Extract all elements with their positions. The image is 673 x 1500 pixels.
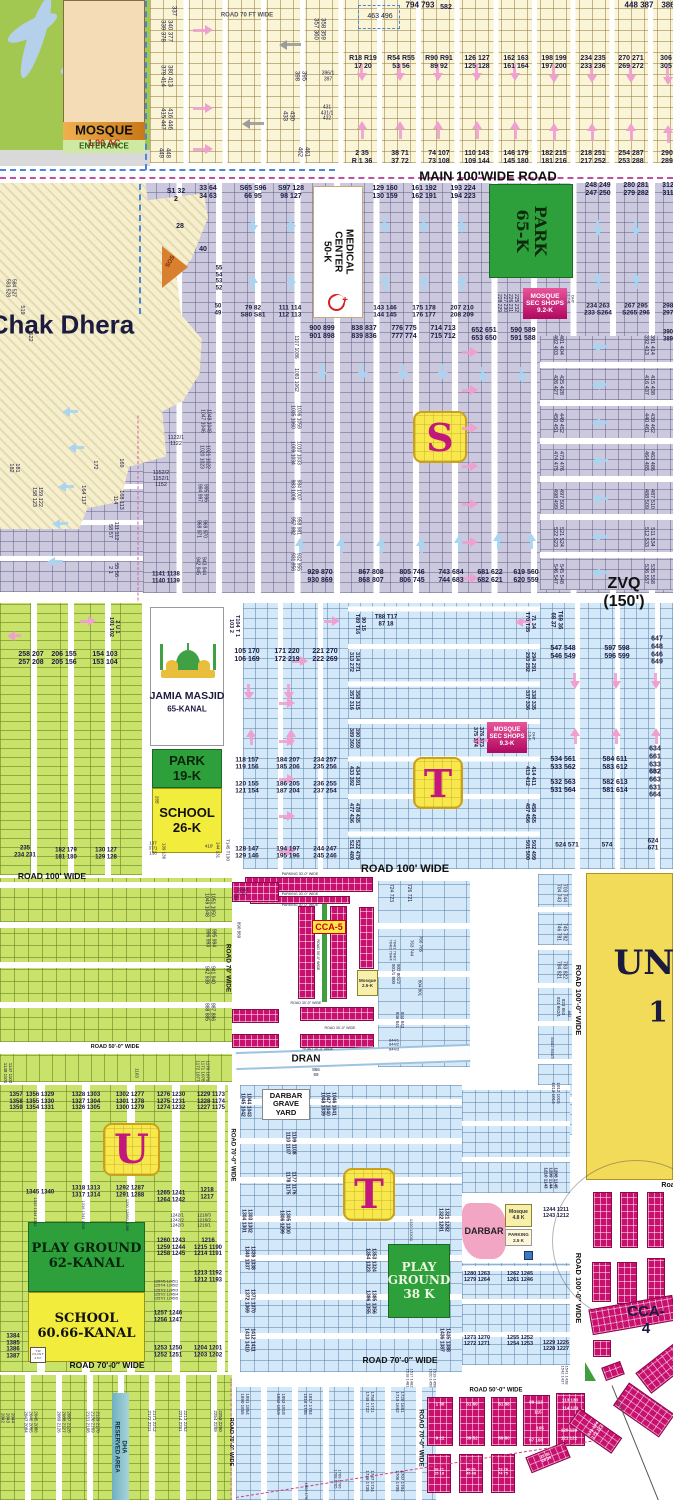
plot-number-label: 1316 1341 1315 <box>81 1201 85 1230</box>
road-label: ROAD 100' WIDE <box>361 863 449 875</box>
plot-number-label: 1750 1721 1749 1722 <box>365 1391 375 1412</box>
blue-arrow-left-icon <box>592 419 608 427</box>
park-65k-label: PARK 65-K <box>513 206 549 256</box>
plot-number-label: 139 136 <box>161 843 166 859</box>
plot-number-label: 844/1 844/2 844/3 <box>389 1038 399 1051</box>
plot-number-label: 1012 1015 1013 1014 <box>551 1082 561 1103</box>
cca4-block <box>647 1192 664 1248</box>
plot-number-label: 71 34 T70 T35 <box>524 612 536 632</box>
medical-center-label: MEDICAL CENTER 50-K <box>321 229 355 275</box>
blue-arrow-up-icon <box>458 275 466 291</box>
blue-arrow-down-icon <box>439 364 447 380</box>
boundary-line <box>0 169 335 171</box>
pink-arrow-right-icon <box>462 462 478 470</box>
plot-number-label: 995 996 994 997 <box>196 484 207 502</box>
plot-number-label: 390 359 389 360 <box>348 728 360 748</box>
plot-number-label: 823 863 824 862/1 <box>556 997 566 1017</box>
road-label: ROAD 100'-0″ WIDE <box>574 965 582 1035</box>
plot-number-label: 270 271 269 272 <box>618 55 643 71</box>
plot-number-label: 1276 1230 1275 1231 1274 1232 <box>157 1092 185 1112</box>
plot-number-label: 1242/1 1242/2 1242/3 <box>170 1212 184 1227</box>
pink-arrow-right-icon <box>462 348 478 356</box>
plot-number-label: 1122/1 1122 <box>168 435 184 447</box>
field-u-top <box>0 603 148 875</box>
blue-arrow-down-icon <box>594 220 602 236</box>
medical-crescent-icon: + <box>328 294 348 310</box>
plot-number-label: 1010 1033 1009 1034 <box>289 441 300 465</box>
blue-arrow-left-icon <box>592 343 608 351</box>
plot-number-label: 1216 1215 1190 1214 1191 <box>194 1238 222 1258</box>
boundary-line <box>138 416 139 601</box>
plot-number-label: T88 T17 87 18 <box>375 614 397 627</box>
pink-arrow-right-icon <box>193 104 213 112</box>
mosque-sec-shops-92-label: MOSQUE SEC SHOPS 9.2-K <box>526 293 564 315</box>
plot-number-label: 929 870 930 869 <box>307 569 332 585</box>
park-19k: PARK 19-K <box>152 749 222 788</box>
plot-number-label: 267 295 S265 296 <box>622 303 650 318</box>
plot-number-label: 714 713 715 712 <box>430 325 455 341</box>
plot-number-label: 1046 1041 1047 1040 1048 1039 <box>319 1092 336 1116</box>
plot-number-label: 478 435 477 436 <box>348 803 360 823</box>
plot-number-label: 113 130 <box>562 1397 578 1402</box>
blue-arrow-up-icon <box>527 533 535 549</box>
plot-number-label: 294 291 293 292 <box>524 652 536 672</box>
plot-number-label: 2087 2128 2088 2127 2089 2126 <box>56 1411 71 1432</box>
plot-number-label: 1109 1108 1110 1107 <box>284 1131 295 1154</box>
plot-number-label: 2171 2212 2172 2211 <box>147 1410 157 1431</box>
cca5-chip: CCA-5 <box>312 920 346 934</box>
plot-number-label: 338 335 337 336 <box>524 690 536 710</box>
plot-number-label: 90 15 T89 T16 <box>354 614 366 634</box>
plot-number-label: 1244 1211 1243 1212 <box>543 1207 569 1219</box>
plot-number-label: 285' <box>154 796 159 804</box>
plot-number-label: ROAD 30'-0″ WIDE <box>325 1026 356 1030</box>
plot-number-label: 890 889 <box>236 922 241 938</box>
plot-number-label: 1353 1324 1354 1323 <box>364 1248 375 1272</box>
plot-number-label: 130 127 129 128 <box>95 847 117 860</box>
plot-number-label: 425 428 426 427 <box>552 375 564 395</box>
playground-38k: PLAY GROUND 38 K <box>388 1244 450 1318</box>
plot-number-label: S65 S96 66 95 <box>240 185 267 201</box>
ohwt-box-label: T.W O.H.W.T 2.5 K <box>32 1350 44 1360</box>
plot-number-label: 33 64 34 63 <box>199 185 217 201</box>
blue-arrow-up-icon <box>337 538 345 554</box>
plot-number-label: 2129 2170 2130 2169 2131 2168 <box>85 1411 100 1432</box>
plot-number-label: 943 944 942 945 <box>194 557 205 575</box>
pink-arrow-right-icon <box>462 574 478 582</box>
plot-number-label: 28 <box>176 223 184 231</box>
plot-number-label: 844 843 846 841 <box>395 1012 405 1028</box>
cca4-block <box>593 1192 612 1248</box>
blue-arrow-down-icon <box>249 217 257 233</box>
plot-number-label: 1328 1303 1327 1304 1326 1305 <box>72 1092 100 1112</box>
plot-number-label: 1891 1854 1890 1855 <box>240 1393 250 1414</box>
pink-arrow-right-icon <box>279 812 295 820</box>
plot-number-label: 932 955 931 956 <box>289 553 300 571</box>
plot-number-label: 805 746 806 745 <box>399 569 424 585</box>
plot-number-label: 776 775 777 774 <box>391 325 416 341</box>
ohwt-tank <box>524 1251 533 1260</box>
plot-number-label: 1229 1226 1228 1227 <box>543 1340 569 1352</box>
plot-number-label: 1385 1356 1386 1355 <box>364 1290 375 1314</box>
plot-number-label: 97 106 <box>529 1437 543 1442</box>
plot-number-label: 1147 1102 1148 1101 <box>3 1063 13 1084</box>
darbar-graveyard-label: DARBAR GRAVE YARD <box>263 1092 309 1117</box>
pink-arrow-up-icon <box>247 729 255 745</box>
plot-number-label: 864 <box>233 893 238 901</box>
cca5-block <box>300 1034 374 1048</box>
plot-number-label: 958 981 957 982 <box>289 517 300 535</box>
plot-number-label: 234 235 233 236 <box>580 55 605 71</box>
plot-number-label: 39 52 <box>466 1435 477 1440</box>
plot-number-label: 522 <box>27 332 33 341</box>
plot-number-label: 380 413 379 414 <box>159 65 172 87</box>
ohwt-box: T.W O.H.W.T 2.5 K <box>30 1347 46 1363</box>
blue-arrow-left-icon <box>592 457 608 465</box>
plot-number-label: 1213 1192 1212 1193 <box>194 1270 222 1283</box>
road-label: ZVQ (150') <box>600 575 649 611</box>
plot-number-label: 2045 2086 2046 2085 2047 2084 <box>23 1411 38 1432</box>
plot-number-label: 1107 1086 <box>292 335 298 358</box>
mosque-48k-label: Mosque 4.8 K <box>509 1210 528 1221</box>
plot-number-label: 154 103 153 104 <box>92 651 117 667</box>
plot-number-label: 1737 1734 1736 1735 <box>365 1470 375 1491</box>
plot-number-label: 1218 1217 <box>200 1187 213 1200</box>
pink-arrow-up-icon <box>434 121 442 139</box>
area-label: JAMIA MASJID <box>150 691 225 703</box>
plot-number-label: 225 232 226 231 227 230 228 229 <box>496 294 518 312</box>
plot-number-label: 128 147 129 146 <box>235 846 259 861</box>
plot-number-label: 802 801/2 801/1 800 <box>391 964 401 984</box>
plot-number-label: 458 455 457 456 <box>524 803 536 823</box>
blue-arrow-down-icon <box>381 217 389 233</box>
plot-number-label: 463 486 464 485 <box>643 451 655 471</box>
plot-number-label: 2 U 1 101 102 <box>108 617 120 637</box>
plot-number-label: 111 112 58 57 <box>107 522 119 541</box>
plot-number-label: 995 994 996 993 <box>204 929 215 947</box>
mosque-enclave <box>63 0 145 124</box>
plot-number-label: 584 611 583 612 <box>602 756 627 772</box>
plot-number-label: 235 234 231 <box>14 845 36 858</box>
pink-arrow-right-icon <box>279 699 295 707</box>
plot-number-label: 358 359 357 360 <box>312 18 325 40</box>
plot-number-label: 1305 1300 1306 1299 <box>278 1210 289 1234</box>
plot-number-label: 1345 1340 <box>26 1190 54 1197</box>
plot-number-label: 162 163 161 164 <box>503 55 528 71</box>
plot-number-label: PARKING 30'-0″ WIDE <box>282 892 318 896</box>
plot-number-label: 114 129 <box>562 1405 578 1410</box>
cca4-block <box>617 1262 637 1304</box>
plot-number-label: 1320 1320/1 <box>409 1219 413 1241</box>
mosque-48k: Mosque 4.8 K <box>505 1204 532 1227</box>
plot-number-label: 574 <box>602 841 613 848</box>
plot-number-label: 1141 1138 1140 1139 <box>152 571 180 584</box>
plot-number-label: 1255 1252 1254 1253 <box>507 1335 533 1347</box>
plot-number-label: 521 524 522 523 <box>552 527 564 547</box>
plot-number-label: 161 192 162 191 <box>411 185 436 201</box>
plot-number-label: PARKING 30'-0″ WIDE <box>282 903 318 907</box>
map-canvas: MEDICAL CENTER 50-KPARK 65-KMOSQUE SEC S… <box>0 0 673 1500</box>
cca5-block <box>300 1007 374 1021</box>
green-triangle <box>585 1362 596 1381</box>
mosque-sec-shops-93: MOSQUE SEC SHOPS 9.3-K <box>487 722 527 753</box>
cca4-block <box>593 1340 611 1357</box>
plot-number-label: 647 648 646 649 <box>649 635 665 666</box>
cca5-block <box>232 1009 279 1023</box>
plot-number-label: 391 414 392 413 <box>643 335 655 355</box>
plot-number-label: 1048 1049 1047 1046 <box>199 409 210 433</box>
plot-number-label: 1083 1062 <box>292 368 298 392</box>
pink-arrow-right-icon <box>324 617 340 625</box>
plot-number-label: 111 114 112 113 <box>279 305 302 320</box>
pink-arrow-right-icon <box>462 424 478 432</box>
plot-number-label: 121 122 <box>561 1435 577 1440</box>
plot-number-label: 376 373 375 374 <box>472 727 484 747</box>
plot-number-label: 1707 1704 1706 1705 <box>395 1470 405 1491</box>
road-label: ROAD 70'-0″ WIDE <box>229 1129 236 1182</box>
boundary-line <box>145 1 147 170</box>
pink-arrow-up-icon <box>571 728 579 744</box>
playground-62k: PLAY GROUND 62-KANAL <box>28 1222 145 1292</box>
plot-number-label: 941 940 942 939 <box>203 966 214 984</box>
plot-number-label: 234 257 235 256 <box>313 757 337 772</box>
plot-number-label: 115 <box>534 1409 541 1414</box>
plot-number-label: 129 160 130 159 <box>372 185 397 201</box>
plot-number-label: 2 35 R 1 36 <box>352 150 373 166</box>
pink-arrow-up-icon <box>396 121 404 139</box>
plot-number-label: 590 589 591 588 <box>510 327 535 343</box>
plot-number-label: 534 561 533 562 <box>550 756 575 772</box>
blue-arrow-down-icon <box>287 217 295 233</box>
plot-number-label: 439 462 440 461 <box>643 413 655 433</box>
blue-arrow-up-icon <box>377 538 385 554</box>
plot-number-label: 487 510 488 509 <box>643 489 655 509</box>
plot-number-label: PARKING 30'-0″ WIDE <box>282 872 318 876</box>
sector-letter: T <box>424 761 452 806</box>
pink-arrow-up-icon <box>588 123 596 141</box>
plot-number-label: 1036 1059 1035 1060 <box>289 405 300 429</box>
road-label: ROAD 70 FT WIDE <box>221 13 273 20</box>
pink-arrow-left-icon <box>7 632 21 640</box>
pink-arrow-right-icon <box>193 145 213 153</box>
plot-number-label: 31 60 <box>466 1401 477 1406</box>
plot-number-label: 726 721 <box>405 884 411 902</box>
blue-arrow-down-icon <box>420 217 428 233</box>
plot-number-label: 168 113 114 <box>112 490 124 509</box>
blue-arrow-down-icon <box>479 367 487 383</box>
plot-number-label: 38 71 37 72 <box>391 150 409 166</box>
sector-badge-u: U <box>103 1123 160 1176</box>
plot-number-label: ROAD 30'-0″ WIDE <box>291 1001 322 1005</box>
plot-number-label: 783 822 784 821 <box>555 961 566 979</box>
gray-arrow-left-icon <box>242 120 264 128</box>
plot-number-label: 105 <box>536 1425 544 1430</box>
plot-number-label: ROAD 30'-0″ WIDE <box>303 1047 334 1051</box>
plot-number-label: 1817 1784 1816 1785 <box>303 1393 313 1414</box>
blue-arrow-up-icon <box>594 273 602 289</box>
plot-number-label: 414 411 413 412 <box>524 766 536 786</box>
boundary-line <box>139 184 141 314</box>
plot-number-label: 1262 1245 1261 1246 <box>507 1271 533 1283</box>
plot-number-label: 1273 1270 1272 1271 <box>464 1335 490 1347</box>
plot-number-label: 1303 1302 1304 1301 <box>240 1209 251 1233</box>
blue-arrow-down-icon <box>399 364 407 380</box>
pink-arrow-right-icon <box>193 26 213 34</box>
plot-number-label: 1163 <box>134 1068 139 1078</box>
plot-number-label: 254 287 253 288 <box>618 150 643 166</box>
plot-number-label: 703 744 704 743 <box>555 884 566 902</box>
blue-arrow-up-icon <box>287 275 295 291</box>
plot-number-label: 763 744 <box>409 940 414 956</box>
blue-arrow-up-icon <box>494 533 502 549</box>
plot-number-label: 1384 1385 1386 1387 <box>6 1334 19 1361</box>
plot-number-label: 473 476 474 475 <box>552 451 564 471</box>
plot-number-label: 866 59 <box>312 1067 320 1077</box>
plot-number-label: 497 500 498 499 <box>552 489 564 509</box>
plot-number-label: 395 398 <box>293 71 306 81</box>
plot-number-label: 745 782 746 781 <box>555 923 566 941</box>
cca5-block <box>232 1034 279 1048</box>
area-label: Chak Dhera <box>0 310 134 339</box>
plot-number-label: 1720 1691 1719 1692 <box>395 1391 405 1412</box>
blue-arrow-left-icon <box>47 558 63 566</box>
plot-number-label: 144 131 <box>215 842 220 858</box>
plot-number-label: 652 651 653 650 <box>471 327 496 343</box>
area-label: MOSQUE <box>75 124 133 139</box>
plot-number-label: 340 377 339 378 <box>159 20 172 42</box>
plot-number-label: 1257 1246 1256 1247 <box>154 1310 182 1323</box>
plot-number-label: 511 534 512 533 <box>643 527 655 547</box>
plot-number-label: 169 <box>118 458 124 467</box>
plot-number-label: 463 496 <box>367 13 392 21</box>
plot-number-label: 1260 1243 1259 1244 1258 1245 <box>157 1238 185 1258</box>
plot-number-label: 182 179 181 180 <box>55 847 77 860</box>
plot-number-label: 105 170 106 169 <box>234 648 259 664</box>
plot-number-label: 40 51 45 48 <box>466 1468 476 1477</box>
plot-number-label: 79 82 S80 S81 <box>241 305 266 320</box>
plot-number-label: 1769 1766 1768 1765 <box>333 1470 342 1489</box>
road-label: ROAD 70'-0″ WIDE <box>417 1409 424 1466</box>
park-19k-label: PARK 19-K <box>169 754 205 783</box>
road-label: ROAD 70'-0″ WIDE <box>69 1361 144 1371</box>
parking-25k-label: PARKING 2.5 K <box>508 1232 528 1242</box>
plot-number-label: 55 54 53 52 <box>216 266 223 293</box>
blue-arrow-left-icon <box>592 533 608 541</box>
blue-arrow-left-icon <box>58 483 74 491</box>
plot-number-label: 396/1 397 <box>322 71 335 82</box>
plot-number-label: 1321 1282 1322 1281 <box>437 1208 448 1232</box>
plot-number-label: 838 837 839 836 <box>351 325 376 341</box>
plot-number-label: R90 R91 89 92 <box>425 55 453 71</box>
plot-number-label: 1216/3 1216/2 1216/1 <box>197 1212 211 1227</box>
plot-number-label: 766 765 <box>418 936 423 952</box>
pink-arrow-up-icon <box>652 728 660 744</box>
blue-arrow-up-icon <box>632 273 640 289</box>
plot-number-label: 416 446 415 447 <box>159 108 172 130</box>
plot-number-label: OHT 2.6-K <box>527 731 536 741</box>
cca4-block <box>601 1361 625 1381</box>
plot-number-label: 1343 1344 1342 <box>33 1198 37 1227</box>
blue-arrow-left-icon <box>52 520 68 528</box>
plot-number-label: T104 T 1 103 2 <box>228 615 240 637</box>
road-label: ROAD 50'-0″ WIDE <box>91 1044 140 1050</box>
plot-number-label: 182 215 181 216 <box>541 150 566 166</box>
pink-arrow-down-icon <box>652 673 660 689</box>
plot-number-label: 502 499 501 500 <box>524 840 536 860</box>
plot-number-label: 1204 1201 1203 1202 <box>194 1345 222 1358</box>
plot-number-label: 804 801 <box>417 980 422 996</box>
pink-arrow-right-icon <box>462 538 478 546</box>
plot-number-label: 2213 2252 2214 2251 <box>178 1410 188 1431</box>
pink-arrow-down-icon <box>245 684 253 700</box>
road-label: ROAD 100'-0″ WIDE <box>574 1253 582 1323</box>
plot-number-label: 1412 1411 1413 1410 <box>243 1328 254 1352</box>
plot-number-label: T69 36 68 37 <box>549 611 562 630</box>
plot-number-label: 743 684 744 683 <box>438 569 463 585</box>
plot-number-label: 159 122 158 123 <box>31 487 43 507</box>
plot-number-label: 337 <box>170 6 177 16</box>
school-6066k-label: SCHOOL 60.66-KANAL <box>37 1312 135 1341</box>
blue-arrow-down-icon <box>518 367 526 383</box>
gray-arrow-left-icon <box>279 41 301 49</box>
plot-number-label: 619 560 620 559 <box>513 569 538 585</box>
plot-number-label: 1044 1043 1045 1042 <box>239 1093 250 1117</box>
pink-arrow-up-icon <box>612 728 620 744</box>
plot-number-label: 448 449 <box>157 148 170 158</box>
road-label: MAIN 100'WIDE ROAD <box>419 170 556 185</box>
plot-number-label: 164 117 <box>80 485 86 504</box>
jamia-mosque-icon <box>160 636 216 680</box>
road-label: DRAN <box>292 1053 321 1064</box>
plot-number-label: 1 30 <box>436 1401 445 1406</box>
plot-number-label: R54 R55 53 56 <box>387 55 415 71</box>
plot-number-label: 193 224 194 223 <box>450 185 475 201</box>
plot-number-label: 431 431/1 432 <box>321 106 334 123</box>
plot-number-label: 1290 1289/1 1289 <box>125 1199 129 1231</box>
area-label: UN <box>614 944 673 982</box>
road-label: ROAD 70'-0″ WIDE <box>228 1418 234 1467</box>
plot-number-label: 1339 1338 1340 1337 <box>243 1246 254 1270</box>
plot-number-label: 1021 1022 1020 1023 <box>198 445 209 469</box>
cca4-block <box>635 1336 673 1393</box>
mosque-25k: Mosque 2.5-K <box>357 970 378 996</box>
plot-number-label: 524 571 <box>555 841 579 848</box>
plot-number-label: 1435 1388 1436 1387 <box>438 1328 449 1352</box>
plot-number-label: OHWT 1.8-K <box>238 888 249 896</box>
plot-number-label: 234 263 233 S264 <box>584 303 612 318</box>
boundary-line <box>0 177 673 179</box>
plot-number-label: 9 22 <box>436 1435 445 1440</box>
plot-number-label: 1318 1313 1317 1314 <box>72 1185 100 1198</box>
road-label: ROAD 70' WIDE <box>224 944 231 993</box>
area-label: 1 <box>648 996 667 1027</box>
darbar-block: DARBAR <box>462 1203 506 1259</box>
plot-number-label: 358 315 357 316 <box>348 690 360 710</box>
plot-number-label: 1170 1079 1171 1078 1172 1077 <box>195 1061 210 1082</box>
darbar-graveyard: DARBAR GRAVE YARD <box>262 1089 310 1120</box>
plot-number-label: 900 899 901 898 <box>309 325 334 341</box>
blue-arrow-down-icon <box>458 217 466 233</box>
mosque-sec-shops-93-label: MOSQUE SEC SHOPS 9.3-K <box>489 727 524 747</box>
cca5-boulevard <box>322 904 327 1002</box>
plot-number-label: 1802 1799 <box>304 1483 308 1500</box>
plot-number-label: 298 297 <box>663 303 673 318</box>
plot-number-label: 171 220 172 219 <box>274 648 299 664</box>
plot-number-label: 55 56 2 1 <box>107 563 119 577</box>
plot-number-label: 175 178 176 177 <box>412 305 436 320</box>
pink-arrow-up-icon <box>550 123 558 141</box>
blue-arrow-down-icon <box>318 364 326 380</box>
